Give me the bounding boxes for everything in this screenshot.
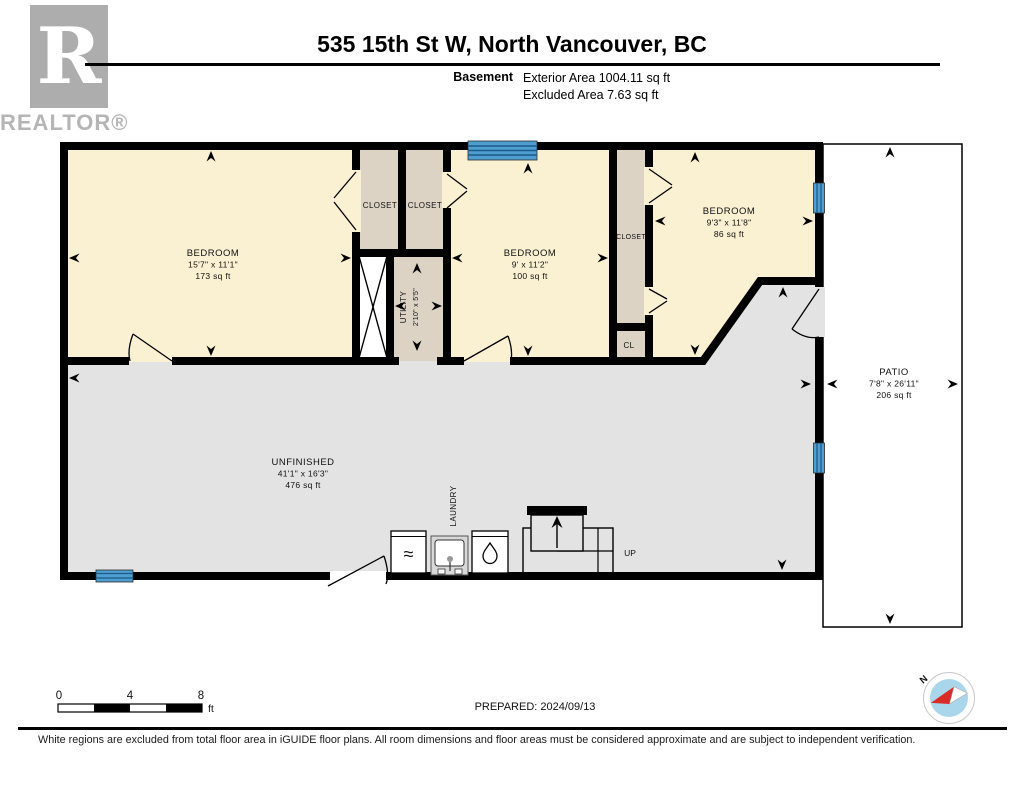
label-bedroom-left: BEDROOM xyxy=(187,248,240,259)
laundry-tub-icon xyxy=(431,536,468,575)
scale-tick-0: 0 xyxy=(56,690,62,702)
label-closet-cl: CL xyxy=(623,341,634,350)
window-right-lower xyxy=(814,443,825,473)
room-closet-2 xyxy=(402,146,447,253)
label-bedroom-right: BEDROOM xyxy=(703,206,756,217)
room-closet-1 xyxy=(356,146,402,253)
label-closet-3: CLOSET xyxy=(616,234,646,241)
door-utility xyxy=(399,356,437,367)
washer-icon: ≈ xyxy=(391,531,426,573)
footer-divider xyxy=(18,727,1007,730)
scale-tick-4: 4 xyxy=(127,690,134,702)
label-bedroom-right-area: 86 sq ft xyxy=(714,229,745,239)
window-bottom-left xyxy=(96,570,133,582)
footer-disclaimer: White regions are excluded from total fl… xyxy=(38,734,998,746)
floorplan-drawing: UP ≈ BEDROOM xyxy=(0,0,1024,791)
label-bedroom-middle: BEDROOM xyxy=(504,248,557,259)
compass-icon: N xyxy=(918,673,975,724)
label-patio-dims: 7'8" x 26'11" xyxy=(869,379,919,389)
dryer-icon xyxy=(472,531,508,573)
label-bedroom-middle-dims: 9' x 11'2" xyxy=(512,260,549,270)
appliances: ≈ xyxy=(391,531,508,575)
prepared-date: PREPARED: 2024/09/13 xyxy=(475,701,596,713)
label-unfinished-area: 476 sq ft xyxy=(285,480,321,490)
washer-glyph: ≈ xyxy=(404,544,414,564)
scale-tick-8: 8 xyxy=(198,690,204,702)
stairs-up-label: UP xyxy=(624,548,636,558)
label-patio-area: 206 sq ft xyxy=(876,390,912,400)
label-bedroom-right-dims: 9'3" x 11'8" xyxy=(707,218,752,228)
label-patio: PATIO xyxy=(879,367,909,378)
label-utility: UTILITY xyxy=(399,290,408,323)
label-bedroom-middle-area: 100 sq ft xyxy=(512,271,548,281)
label-closet-2: CLOSET xyxy=(408,201,442,210)
scale-bar: 0 4 8 ft xyxy=(56,690,214,715)
scale-unit: ft xyxy=(208,703,214,715)
label-utility-dims: 2'10" x 5'5" xyxy=(413,288,420,326)
label-closet-1: CLOSET xyxy=(363,201,397,210)
label-bedroom-left-dims: 15'7" x 11'1" xyxy=(188,260,238,270)
label-bedroom-left-area: 173 sq ft xyxy=(195,271,231,281)
window-top xyxy=(468,141,537,160)
window-right-upper xyxy=(814,183,825,213)
floorplan-page: R REALTOR® 535 15th St W, North Vancouve… xyxy=(0,0,1024,791)
label-unfinished-dims: 41'1" x 16'3" xyxy=(278,469,329,479)
label-unfinished: UNFINISHED xyxy=(271,457,334,468)
label-laundry: LAUNDRY xyxy=(449,485,458,526)
